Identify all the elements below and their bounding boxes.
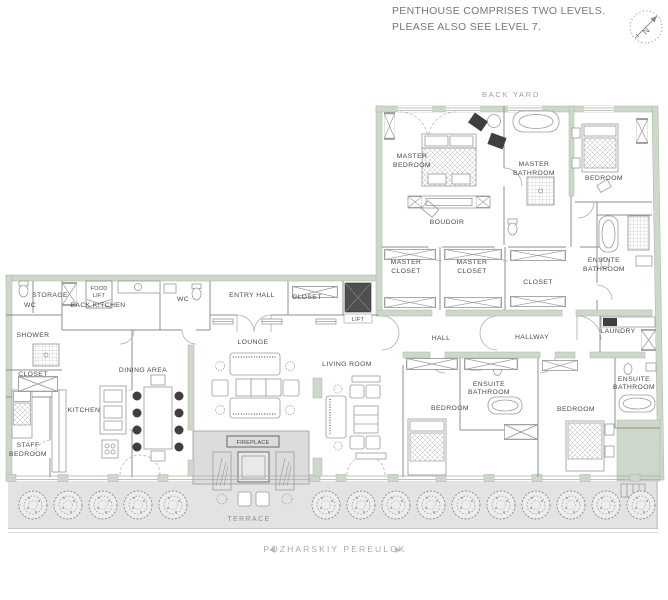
header: PENTHOUSE COMPRISES TWO LEVELS. PLEASE A… bbox=[392, 5, 605, 33]
svg-text:BATHROOM: BATHROOM bbox=[613, 384, 655, 391]
furniture bbox=[12, 111, 656, 475]
room-label-master-closet-1: MASTER bbox=[391, 259, 422, 266]
wardrobe-icons bbox=[19, 113, 648, 391]
room-label-ensuite-s2: ENSUITE bbox=[618, 376, 650, 383]
room-label-kitchen: KITCHEN bbox=[68, 407, 101, 414]
room-label-master-bedroom: MASTER bbox=[397, 153, 428, 160]
fireplace-label: FIREPLACE bbox=[237, 440, 270, 446]
header-line-1: PENTHOUSE COMPRISES TWO LEVELS. bbox=[392, 5, 605, 17]
room-label-master-closet-2: MASTER bbox=[457, 259, 488, 266]
room-label-storage: STORAGE bbox=[32, 292, 68, 299]
room-label-back-kitchen: BACK KITCHEN bbox=[70, 302, 125, 309]
street-arrow-right-icon: ▶ bbox=[395, 545, 402, 554]
room-label-bedroom-ne: BEDROOM bbox=[585, 175, 623, 182]
master-shower-icon bbox=[527, 177, 554, 205]
planter-icon bbox=[313, 378, 322, 398]
bedroom-s1-bed-icon bbox=[408, 419, 538, 475]
back-yard-label: BACK YARD bbox=[482, 90, 540, 99]
room-label-staff-bedroom: STAFF bbox=[16, 442, 39, 449]
floor-plan-svg: BACK YARD MASTER BEDROOM BOUDOIR MASTER … bbox=[0, 0, 668, 600]
room-label-closet-w: CLOSET bbox=[18, 371, 48, 378]
planter-icon bbox=[313, 458, 322, 476]
room-label-entry-hall: ENTRY HALL bbox=[229, 292, 275, 299]
room-label-bedroom-s2: BEDROOM bbox=[557, 406, 595, 413]
room-label-wc-left: WC bbox=[24, 302, 36, 309]
svg-text:BEDROOM: BEDROOM bbox=[393, 162, 431, 169]
room-label-lounge: LOUNGE bbox=[237, 339, 268, 346]
room-label-food-lift: FOOD bbox=[91, 286, 108, 292]
room-label-ensuite-s1: ENSUITE bbox=[473, 381, 505, 388]
south-wall-stubs bbox=[6, 475, 640, 482]
room-label-closet-n: CLOSET bbox=[523, 279, 553, 286]
svg-text:BATHROOM: BATHROOM bbox=[583, 266, 625, 273]
compass-icon: N bbox=[630, 11, 662, 43]
svg-text:LIFT: LIFT bbox=[93, 293, 106, 299]
room-label-laundry: LAUNDRY bbox=[600, 328, 635, 335]
fireplace-icon bbox=[238, 452, 269, 482]
compass-n-label: N bbox=[640, 25, 651, 36]
room-label-shower: SHOWER bbox=[17, 332, 50, 339]
master-bed-icon bbox=[408, 134, 490, 208]
room-label-wc-mid: WC bbox=[177, 296, 189, 303]
room-label-boudoir: BOUDOIR bbox=[430, 219, 465, 226]
wc-left-fixtures bbox=[19, 281, 28, 297]
room-label-ensuite-ne: ENSUITE bbox=[588, 257, 620, 264]
room-label-hallway: HALLWAY bbox=[515, 334, 549, 341]
svg-text:BATHROOM: BATHROOM bbox=[513, 170, 555, 177]
room-label-hall: HALL bbox=[432, 335, 451, 342]
stair-block bbox=[617, 420, 660, 481]
dining-table-icon bbox=[133, 375, 184, 461]
room-label-lift: LIFT bbox=[352, 317, 365, 323]
room-label-closet-entry: CLOSET bbox=[292, 294, 322, 301]
svg-text:BEDROOM: BEDROOM bbox=[9, 451, 47, 458]
living-room-furniture bbox=[326, 376, 386, 459]
lounge-sofas bbox=[212, 353, 299, 418]
bedroom-s2-bed-icon bbox=[566, 421, 614, 471]
sill-icons bbox=[213, 319, 336, 324]
room-label-master-bathroom: MASTER bbox=[519, 161, 550, 168]
room-label-bedroom-s1: BEDROOM bbox=[431, 405, 469, 412]
master-bathtub-icon bbox=[513, 111, 559, 132]
svg-text:BATHROOM: BATHROOM bbox=[468, 389, 510, 396]
bedroom-ne-bed-icon bbox=[572, 124, 618, 192]
street-label: ◀ POZHARSKIY PEREULOK ▶ bbox=[263, 544, 406, 554]
terrace-label: TERRACE bbox=[227, 516, 270, 523]
staff-bed-icon bbox=[12, 390, 32, 438]
floor-plan-page: BACK YARD MASTER BEDROOM BOUDOIR MASTER … bbox=[0, 0, 668, 600]
svg-text:CLOSET: CLOSET bbox=[391, 268, 421, 275]
room-label-living-room: LIVING ROOM bbox=[322, 361, 372, 368]
toilet-icon bbox=[508, 219, 517, 235]
svg-text:CLOSET: CLOSET bbox=[457, 268, 487, 275]
room-label-dining-area: DINING AREA bbox=[119, 367, 167, 374]
kitchen-units bbox=[52, 386, 126, 472]
header-line-2: PLEASE ALSO SEE LEVEL 7. bbox=[392, 21, 541, 33]
street-name: POZHARSKIY PEREULOK bbox=[263, 544, 406, 554]
shower-tray-icon bbox=[33, 344, 59, 366]
back-kitchen-counter bbox=[118, 281, 160, 293]
